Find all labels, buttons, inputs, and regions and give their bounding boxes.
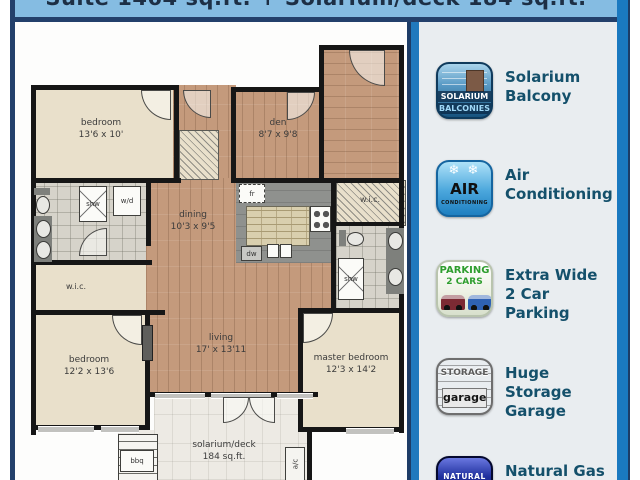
room-label-wic-master: w.i.c. xyxy=(336,195,404,205)
sink-icon xyxy=(388,268,403,286)
ac-label: a/c xyxy=(291,459,299,470)
room-label-dining: dining10'3 x 9'5 xyxy=(143,210,243,233)
air-conditioning-icon[interactable]: ❄ ❄ AIR CONDITIONING xyxy=(436,160,493,217)
shower-stall: shw xyxy=(79,186,107,222)
fridge: fr xyxy=(239,184,265,203)
bbq: bbq xyxy=(120,450,154,472)
kitchen-island xyxy=(246,206,310,246)
dishwasher: dw xyxy=(241,246,262,261)
icon-text: CONDITIONING xyxy=(438,200,491,206)
room-label-master-bedroom: master bedroom12'3 x 14'2 xyxy=(296,353,406,376)
window xyxy=(38,426,94,433)
shower-label: shw xyxy=(344,275,358,283)
snowflake-icon: ❄ ❄ xyxy=(438,163,491,178)
icon-text: STORAGE xyxy=(438,368,491,378)
sink-icon xyxy=(36,241,51,259)
sink-icon xyxy=(388,232,403,250)
solarium-balconies-icon[interactable]: SOLARIUM BALCONIES xyxy=(436,62,493,119)
sink-icon xyxy=(36,220,51,238)
icon-text: 2 CARS xyxy=(438,277,491,287)
kitchen-sink xyxy=(280,244,292,258)
window xyxy=(101,426,139,433)
amenity-2-car-parking[interactable]: PARKING 2 CARS Extra Wide2 Car Parking xyxy=(419,260,617,350)
toilet-tank xyxy=(34,188,50,195)
wall xyxy=(336,222,404,226)
dishwasher-label: dw xyxy=(246,250,256,258)
wall xyxy=(231,178,404,183)
red-car-icon xyxy=(441,295,465,310)
ac-unit: a/c xyxy=(285,447,305,480)
natural-gas-icon[interactable]: NATURAL xyxy=(436,456,493,480)
wall xyxy=(31,178,181,183)
amenity-air-conditioning[interactable]: ❄ ❄ AIR CONDITIONING AirConditioning xyxy=(419,160,617,250)
kitchen-sink xyxy=(267,244,279,258)
icon-text: BALCONIES xyxy=(438,103,491,114)
storage-garage-icon[interactable]: STORAGE garage xyxy=(436,358,493,415)
building-shape xyxy=(466,70,484,92)
floor-plan: shw w/d fr dw shw bbq a/c xyxy=(15,22,407,480)
listing-floorplan-page: Suite 1464 sq.ft. + Solarium/deck 184 sq… xyxy=(0,0,640,480)
wall xyxy=(319,50,324,183)
amenities-sidebar: SOLARIUM BALCONIES SolariumBalcony ❄ ❄ A… xyxy=(419,22,617,480)
room-label-bedroom-top: bedroom13'6 x 10' xyxy=(41,118,161,141)
icon-text: SOLARIUM xyxy=(438,91,491,102)
patio-slider xyxy=(277,393,313,399)
amenity-natural-gas[interactable]: NATURAL Natural Gas xyxy=(419,456,617,480)
room-label-bedroom-bottom: bedroom12'2 x 13'6 xyxy=(29,355,149,378)
room-label-den: den8'7 x 9'8 xyxy=(228,118,328,141)
parking-2-cars-icon[interactable]: PARKING 2 CARS xyxy=(436,260,493,317)
shower-label: shw xyxy=(86,200,100,208)
window xyxy=(346,428,394,435)
amenity-label: Natural Gas xyxy=(505,462,605,480)
patio-slider xyxy=(155,393,205,399)
icon-text: AIR xyxy=(438,180,491,198)
shower-stall: shw xyxy=(338,258,364,300)
amenity-label: Huge StorageGarage xyxy=(505,364,617,421)
suite-size-title: Suite 1464 sq.ft. + Solarium/deck 184 sq… xyxy=(15,0,617,10)
fridge-label: fr xyxy=(249,190,254,198)
frame-right-border xyxy=(617,0,630,480)
stove xyxy=(310,206,331,232)
wall xyxy=(307,432,312,480)
toilet-icon xyxy=(36,196,50,214)
room-label-solarium: solarium/deck184 sq.ft. xyxy=(164,440,284,463)
blue-car-icon xyxy=(468,295,492,310)
toilet-icon xyxy=(347,232,364,246)
hall-closet xyxy=(179,130,219,180)
amenity-label: SolariumBalcony xyxy=(505,68,580,106)
washer-dryer-label: w/d xyxy=(121,197,134,205)
amenity-storage-garage[interactable]: STORAGE garage Huge StorageGarage xyxy=(419,358,617,448)
icon-text: PARKING xyxy=(438,265,491,276)
room-label-wic-left: w.i.c. xyxy=(31,282,121,292)
icon-text: NATURAL xyxy=(438,472,491,480)
amenity-label: Extra Wide2 Car Parking xyxy=(505,266,617,323)
washer-dryer: w/d xyxy=(113,186,141,216)
panel-divider xyxy=(407,22,419,480)
room-label-living: living17' x 13'11 xyxy=(171,333,271,356)
amenity-solarium-balcony[interactable]: SOLARIUM BALCONIES SolariumBalcony xyxy=(419,62,617,152)
toilet-tank xyxy=(339,230,346,246)
icon-text: garage xyxy=(442,388,487,408)
header-bar: Suite 1464 sq.ft. + Solarium/deck 184 sq… xyxy=(15,0,617,22)
bbq-label: bbq xyxy=(130,457,143,465)
wall xyxy=(174,85,179,183)
amenity-label: AirConditioning xyxy=(505,166,613,204)
